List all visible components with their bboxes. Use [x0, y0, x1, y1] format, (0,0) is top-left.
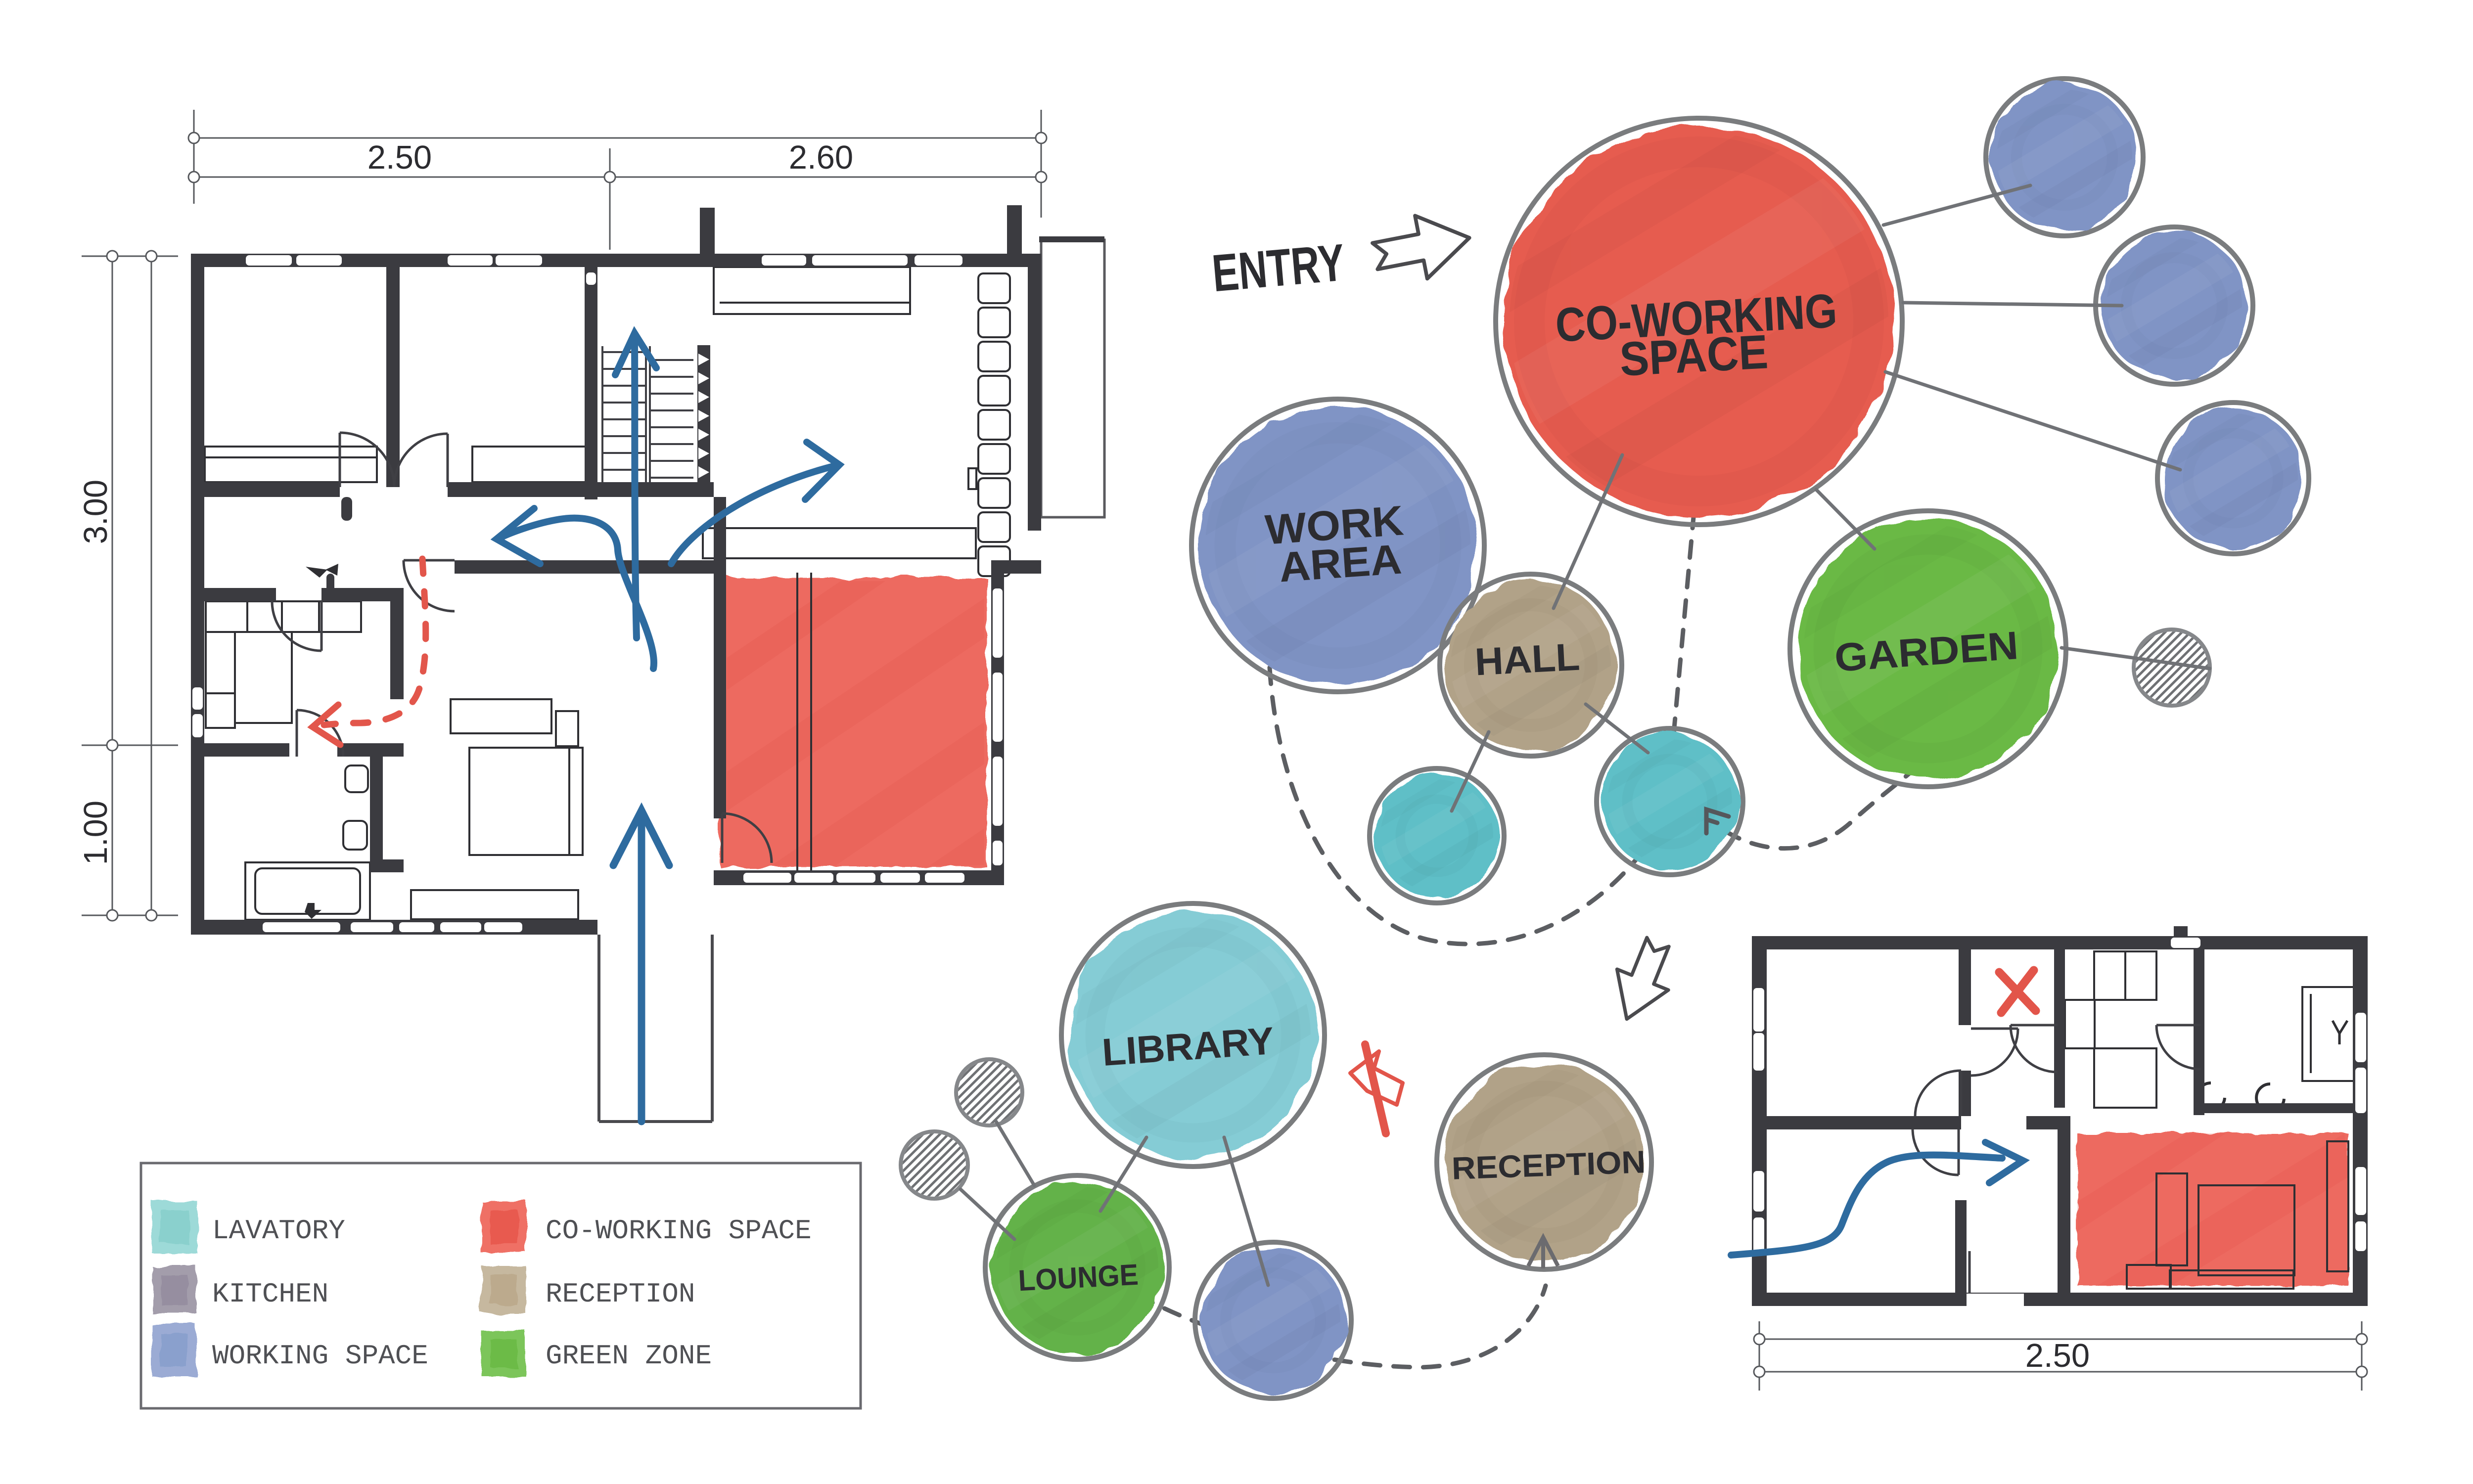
svg-text:RECEPTION: RECEPTION	[546, 1278, 695, 1310]
svg-text:GREEN ZONE: GREEN ZONE	[546, 1340, 712, 1372]
svg-text:3.00: 3.00	[77, 480, 114, 544]
svg-text:WORKING SPACE: WORKING SPACE	[212, 1340, 428, 1372]
svg-text:RECEPTION: RECEPTION	[1451, 1144, 1646, 1186]
svg-text:AREA: AREA	[1278, 536, 1403, 591]
svg-text:CO-WORKING SPACE: CO-WORKING SPACE	[546, 1215, 812, 1247]
svg-text:SPACE: SPACE	[1618, 324, 1769, 386]
svg-text:2.50: 2.50	[2025, 1337, 2090, 1374]
svg-text:ENTRY: ENTRY	[1210, 233, 1347, 303]
svg-text:2.50: 2.50	[367, 139, 432, 176]
svg-text:HALL: HALL	[1474, 635, 1581, 684]
svg-text:1.00: 1.00	[77, 801, 114, 865]
svg-text:2.60: 2.60	[789, 139, 853, 176]
svg-text:LOUNGE: LOUNGE	[1017, 1258, 1139, 1298]
svg-text:KITCHEN: KITCHEN	[212, 1278, 328, 1310]
svg-text:LAVATORY: LAVATORY	[212, 1215, 345, 1247]
